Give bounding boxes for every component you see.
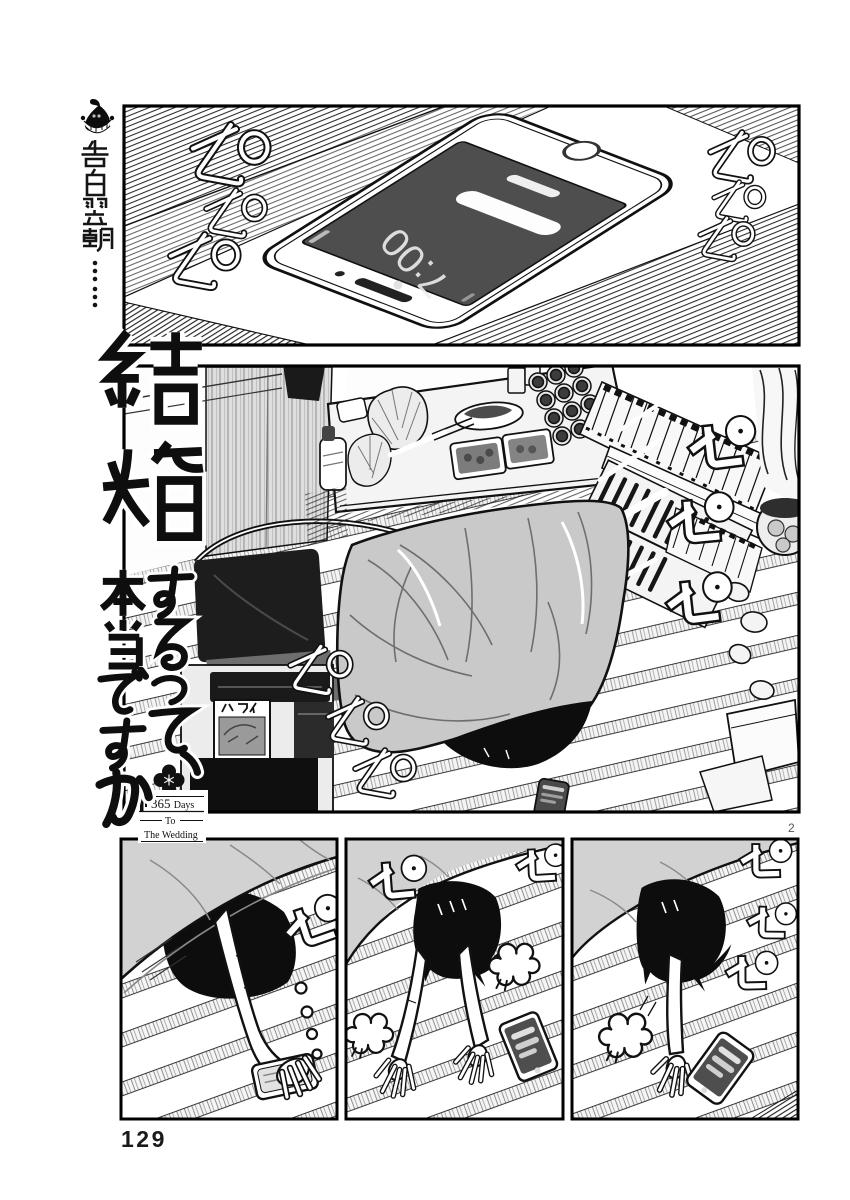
svg-text:129: 129	[121, 1126, 167, 1152]
svg-text:The Wedding: The Wedding	[144, 830, 198, 841]
svg-text:To: To	[165, 816, 175, 827]
svg-text:2: 2	[788, 821, 795, 835]
